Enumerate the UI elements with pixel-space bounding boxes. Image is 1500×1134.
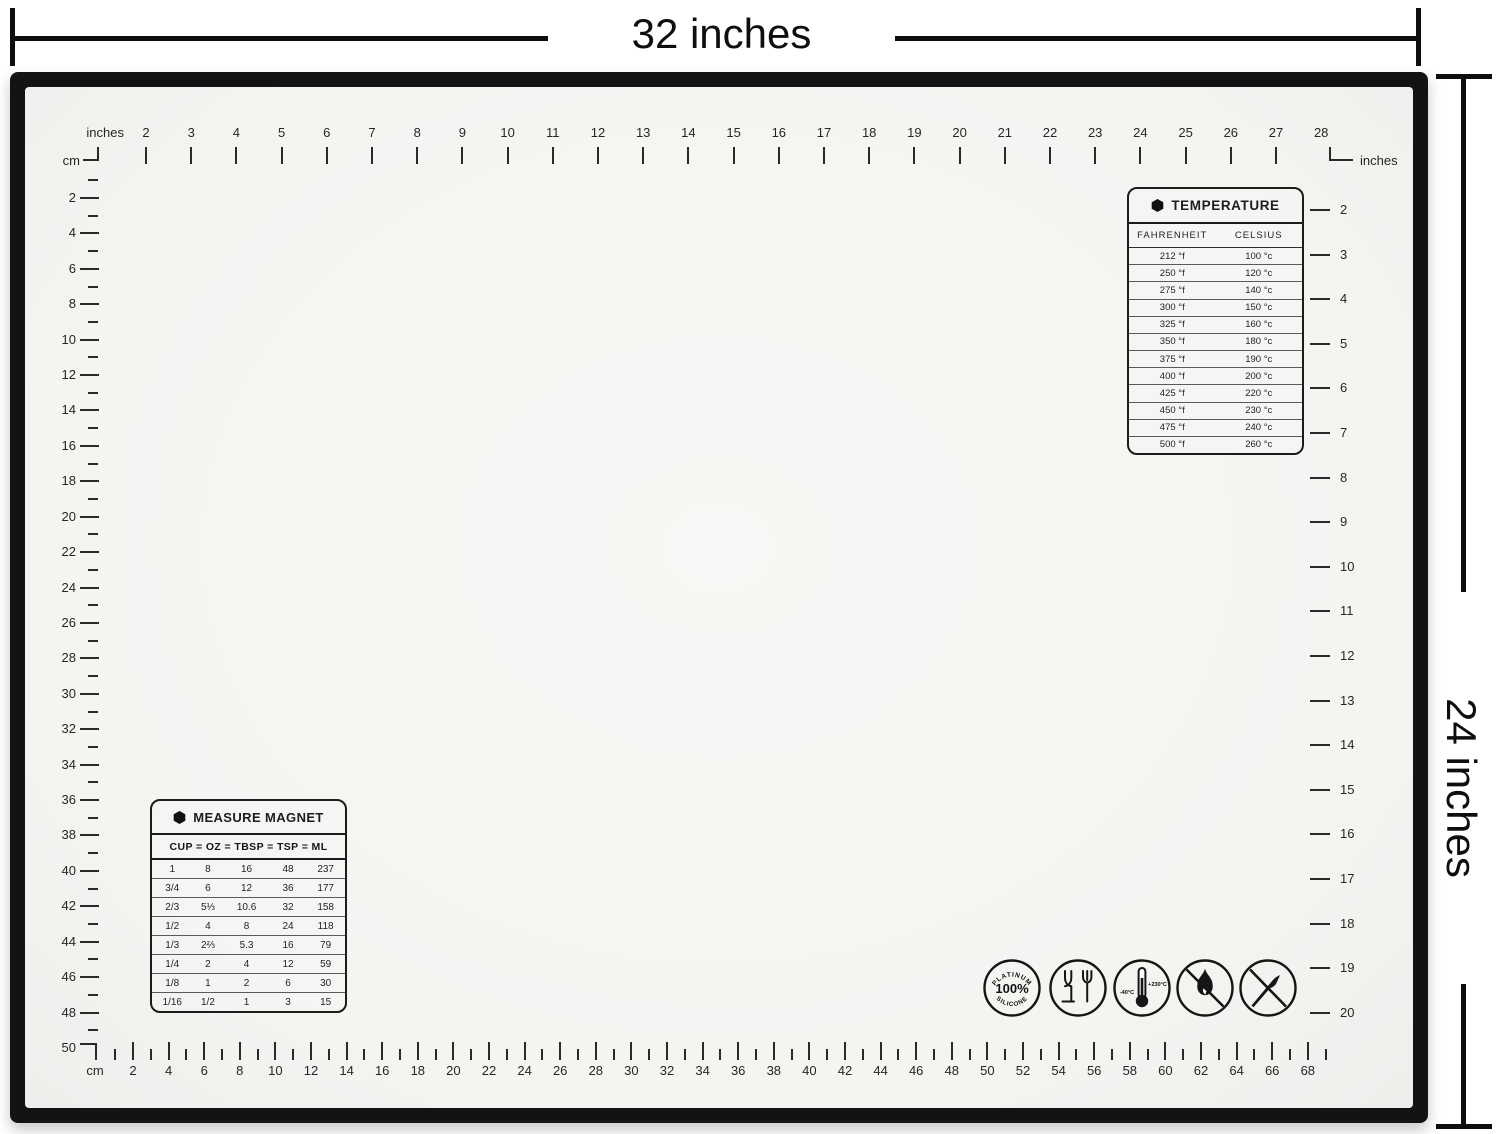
left-ruler-tick: [80, 409, 99, 411]
temperature-row: 450 °f230 °c: [1129, 403, 1302, 420]
measure-cell: 6: [270, 978, 307, 989]
top-ruler-tick: [1230, 147, 1232, 164]
top-ruler-number: 23: [1080, 126, 1110, 140]
bottom-ruler-number: 50: [969, 1064, 1005, 1078]
right-ruler-number: 18: [1340, 917, 1370, 931]
measure-cell: 1/2: [193, 997, 224, 1008]
bottom-ruler-number: 34: [685, 1064, 721, 1078]
bottom-ruler-tick: [274, 1042, 276, 1060]
right-ruler-unit: inches: [1360, 154, 1420, 168]
left-ruler-tick: [88, 958, 98, 960]
bottom-ruler-tick: [1093, 1042, 1095, 1060]
bottom-left-corner-mark: [95, 1043, 97, 1060]
left-ruler-number: 42: [40, 899, 76, 913]
temperature-cell: 100 °c: [1216, 251, 1303, 262]
bottom-ruler-tick: [808, 1042, 810, 1060]
bottom-ruler-number: 36: [720, 1064, 756, 1078]
bottom-ruler-tick: [862, 1049, 864, 1060]
temperature-row: 400 °f200 °c: [1129, 368, 1302, 385]
top-ruler-number: 17: [809, 126, 839, 140]
height-dim-line-top: [1461, 78, 1466, 592]
measure-cell: 118: [306, 921, 345, 932]
top-ruler-number: 21: [990, 126, 1020, 140]
bottom-ruler-number: 2: [115, 1064, 151, 1078]
top-ruler-tick: [552, 147, 554, 164]
left-ruler-number: 8: [40, 297, 76, 311]
right-ruler-tick: [1310, 432, 1330, 434]
measure-table-header: MEASURE MAGNET: [152, 801, 345, 835]
bottom-ruler-tick: [630, 1042, 632, 1060]
top-ruler-number: 14: [673, 126, 703, 140]
measure-cell: 1/3: [152, 940, 193, 951]
temperature-row: 350 °f180 °c: [1129, 334, 1302, 351]
temperature-cell: 450 °f: [1129, 405, 1216, 416]
measure-cell: 36: [270, 883, 307, 894]
right-ruler-tick: [1310, 744, 1330, 746]
right-ruler-number: 19: [1340, 961, 1370, 975]
temperature-cell: 120 °c: [1216, 268, 1303, 279]
left-ruler-tick: [88, 179, 98, 181]
measure-cell: 3/4: [152, 883, 193, 894]
bottom-ruler-tick: [506, 1049, 508, 1060]
left-ruler-tick: [80, 480, 99, 482]
measure-cell: 2: [223, 978, 269, 989]
temperature-cell: 325 °f: [1129, 319, 1216, 330]
left-ruler-tick: [88, 533, 98, 535]
left-ruler-number: 20: [40, 510, 76, 524]
temperature-cell: 250 °f: [1129, 268, 1216, 279]
measure-cell: 1: [223, 997, 269, 1008]
left-ruler-tick: [80, 303, 99, 305]
left-ruler-tick: [88, 640, 98, 642]
left-ruler-tick: [88, 604, 98, 606]
bottom-ruler-tick: [684, 1049, 686, 1060]
right-ruler-number: 6: [1340, 381, 1370, 395]
left-ruler-number: 14: [40, 403, 76, 417]
measure-table-rows: 1816482373/4612361772/35⅓10.6321581/2482…: [152, 860, 345, 1011]
bottom-ruler-number: 68: [1290, 1064, 1326, 1078]
left-ruler-tick: [88, 569, 98, 571]
top-ruler-tick: [778, 147, 780, 164]
left-ruler-number: 2: [40, 191, 76, 205]
measure-cell: 15: [306, 997, 345, 1008]
bottom-ruler-tick: [488, 1042, 490, 1060]
bottom-ruler-number: 30: [613, 1064, 649, 1078]
bottom-ruler-number: 4: [151, 1064, 187, 1078]
measure-cell: 32: [270, 902, 307, 913]
right-ruler-tick: [1310, 298, 1330, 300]
bottom-ruler-number: 54: [1041, 1064, 1077, 1078]
left-ruler-number: 22: [40, 545, 76, 559]
left-ruler-number: 6: [40, 262, 76, 276]
bottom-ruler-tick: [168, 1042, 170, 1060]
right-ruler-tick: [1310, 655, 1330, 657]
measure-cell: 5⅓: [193, 902, 224, 913]
bottom-ruler-number: 58: [1112, 1064, 1148, 1078]
right-ruler-tick: [1310, 387, 1330, 389]
left-ruler-tick: [88, 675, 98, 677]
temperature-cell: 160 °c: [1216, 319, 1303, 330]
bottom-ruler-number: 62: [1183, 1064, 1219, 1078]
top-ruler-tick: [190, 147, 192, 164]
left-ruler-tick: [88, 817, 98, 819]
left-ruler-tick: [80, 657, 99, 659]
bottom-ruler-tick: [737, 1042, 739, 1060]
left-ruler-number: 30: [40, 687, 76, 701]
bottom-ruler-tick: [1075, 1049, 1077, 1060]
bottom-ruler-tick: [1022, 1042, 1024, 1060]
top-ruler-unit: inches: [60, 126, 124, 140]
left-ruler-tick: [80, 870, 99, 872]
left-ruler-tick: [80, 197, 99, 199]
bottom-ruler-number: 10: [257, 1064, 293, 1078]
measure-cell: 1/8: [152, 978, 193, 989]
measure-cell: 2⅔: [193, 940, 224, 951]
left-ruler-number: 32: [40, 722, 76, 736]
temperature-cell: 375 °f: [1129, 354, 1216, 365]
temperature-cell: 230 °c: [1216, 405, 1303, 416]
bottom-ruler-tick: [613, 1049, 615, 1060]
bottom-ruler-tick: [185, 1049, 187, 1060]
measure-table-column-header: CUP = OZ = TBSP = TSP = ML: [152, 835, 345, 860]
top-ruler-number: 7: [357, 126, 387, 140]
temperature-cell: 350 °f: [1129, 336, 1216, 347]
top-ruler-tick: [507, 147, 509, 164]
top-ruler-tick: [823, 147, 825, 164]
measure-magnet-table: MEASURE MAGNET CUP = OZ = TBSP = TSP = M…: [150, 799, 347, 1013]
bottom-ruler-number: 66: [1254, 1064, 1290, 1078]
food-safe-icon: [1051, 961, 1106, 1016]
temperature-cell: 180 °c: [1216, 336, 1303, 347]
measure-cell: 8: [193, 864, 224, 875]
top-right-corner-mark: [1329, 159, 1353, 161]
right-ruler-number: 14: [1340, 738, 1370, 752]
right-ruler-number: 8: [1340, 471, 1370, 485]
temperature-cell: 275 °f: [1129, 285, 1216, 296]
bottom-ruler-tick: [791, 1049, 793, 1060]
bottom-ruler-tick: [114, 1049, 116, 1060]
silicone-label: SILICONE: [995, 995, 1030, 1008]
temperature-cell: 240 °c: [1216, 422, 1303, 433]
top-ruler-tick: [913, 147, 915, 164]
no-knife-icon: [1241, 961, 1296, 1016]
bottom-ruler-tick: [915, 1042, 917, 1060]
right-ruler-tick: [1310, 209, 1330, 211]
right-ruler-tick: [1310, 789, 1330, 791]
top-ruler-number: 12: [583, 126, 613, 140]
top-ruler-tick: [868, 147, 870, 164]
bottom-ruler-tick: [1040, 1049, 1042, 1060]
bottom-ruler-tick: [417, 1042, 419, 1060]
left-ruler-tick: [88, 250, 98, 252]
measure-cell: 48: [270, 864, 307, 875]
left-ruler-tick: [88, 286, 98, 288]
left-ruler-number: 4: [40, 226, 76, 240]
right-ruler-number: 15: [1340, 783, 1370, 797]
bottom-ruler-tick: [1236, 1042, 1238, 1060]
bottom-ruler-number: 28: [578, 1064, 614, 1078]
left-ruler-number: 16: [40, 439, 76, 453]
bottom-ruler-tick: [969, 1049, 971, 1060]
measure-cell: 30: [306, 978, 345, 989]
bottom-ruler-tick: [292, 1049, 294, 1060]
measure-cell: 79: [306, 940, 345, 951]
bottom-ruler-tick: [363, 1049, 365, 1060]
bottom-ruler-tick: [559, 1042, 561, 1060]
bottom-ruler-tick: [257, 1049, 259, 1060]
left-ruler-tick: [80, 587, 99, 589]
max-temp-label: +230°C: [1148, 982, 1167, 988]
top-ruler-number: 27: [1261, 126, 1291, 140]
top-ruler-tick: [1049, 147, 1051, 164]
left-ruler-tick: [80, 516, 99, 518]
hexagon-icon: [1151, 199, 1164, 212]
left-ruler-tick: [88, 321, 98, 323]
temperature-cell: 212 °f: [1129, 251, 1216, 262]
measure-cell: 177: [306, 883, 345, 894]
top-ruler-number: 15: [719, 126, 749, 140]
right-ruler-number: 16: [1340, 827, 1370, 841]
bottom-ruler-tick: [826, 1049, 828, 1060]
width-dim-line-left: [10, 36, 548, 41]
bottom-ruler-tick: [648, 1049, 650, 1060]
bottom-ruler-tick: [435, 1049, 437, 1060]
left-ruler-unit: cm: [46, 154, 80, 168]
temperature-cell: 220 °c: [1216, 388, 1303, 399]
bottom-ruler-tick: [399, 1049, 401, 1060]
bottom-ruler-tick: [1271, 1042, 1273, 1060]
bottom-ruler-tick: [1164, 1042, 1166, 1060]
bottom-ruler-number: 22: [471, 1064, 507, 1078]
temperature-table-header: TEMPERATURE: [1129, 189, 1302, 224]
right-ruler-number: 20: [1340, 1006, 1370, 1020]
right-ruler-tick: [1310, 967, 1330, 969]
bottom-ruler-tick: [150, 1049, 152, 1060]
right-ruler-tick: [1310, 521, 1330, 523]
bottom-ruler-tick: [1058, 1042, 1060, 1060]
width-dimension-label: 32 inches: [548, 10, 895, 58]
bottom-ruler-tick: [773, 1042, 775, 1060]
measure-cell: 4: [193, 921, 224, 932]
right-ruler-number: 3: [1340, 248, 1370, 262]
bottom-ruler-tick: [986, 1042, 988, 1060]
bottom-ruler-tick: [1253, 1049, 1255, 1060]
right-ruler-tick: [1310, 700, 1330, 702]
right-ruler-number: 9: [1340, 515, 1370, 529]
bottom-ruler-tick: [755, 1049, 757, 1060]
right-ruler-tick: [1310, 878, 1330, 880]
right-ruler-tick: [1310, 610, 1330, 612]
temperature-cell: 190 °c: [1216, 354, 1303, 365]
left-ruler-tick: [88, 746, 98, 748]
bottom-ruler-tick: [1218, 1049, 1220, 1060]
left-ruler-tick: [88, 781, 98, 783]
bottom-ruler-tick: [1325, 1049, 1327, 1060]
svg-text:SILICONE: SILICONE: [995, 995, 1030, 1008]
left-ruler-tick: [88, 215, 98, 217]
fahrenheit-column-header: FAHRENHEIT: [1129, 230, 1216, 241]
top-ruler-tick: [461, 147, 463, 164]
temperature-cell: 475 °f: [1129, 422, 1216, 433]
bottom-ruler-number: 38: [756, 1064, 792, 1078]
left-ruler-tick: [80, 1012, 99, 1014]
left-ruler-tick: [88, 888, 98, 890]
top-ruler-tick: [687, 147, 689, 164]
left-ruler-tick: [88, 923, 98, 925]
measure-cell: 2/3: [152, 902, 193, 913]
measure-cell: 3: [270, 997, 307, 1008]
bottom-ruler-tick: [470, 1049, 472, 1060]
top-ruler-number: 5: [267, 126, 297, 140]
temperature-table-rows: 212 °f100 °c250 °f120 °c275 °f140 °c300 …: [1129, 248, 1302, 453]
left-ruler-tick: [80, 976, 99, 978]
top-ruler-number: 18: [854, 126, 884, 140]
left-ruler-number: 26: [40, 616, 76, 630]
temperature-cell: 140 °c: [1216, 285, 1303, 296]
bottom-ruler-tick: [1289, 1049, 1291, 1060]
top-ruler-number: 9: [447, 126, 477, 140]
right-ruler-tick: [1310, 833, 1330, 835]
bottom-ruler-tick: [381, 1042, 383, 1060]
top-ruler-number: 24: [1125, 126, 1155, 140]
top-ruler-number: 10: [493, 126, 523, 140]
measure-cell: 59: [306, 959, 345, 970]
bottom-ruler-tick: [239, 1042, 241, 1060]
top-ruler-tick: [642, 147, 644, 164]
bottom-ruler-tick: [933, 1049, 935, 1060]
no-open-flame-icon: [1178, 961, 1233, 1016]
temperature-cell: 500 °f: [1129, 439, 1216, 450]
top-ruler-tick: [597, 147, 599, 164]
left-ruler-tick: [88, 392, 98, 394]
left-ruler-tick: [80, 445, 99, 447]
measure-cell: 4: [223, 959, 269, 970]
bottom-ruler-number: 48: [934, 1064, 970, 1078]
temperature-row: 375 °f190 °c: [1129, 351, 1302, 368]
temperature-row: 212 °f100 °c: [1129, 248, 1302, 265]
right-ruler-tick: [1310, 477, 1330, 479]
top-ruler-tick: [1004, 147, 1006, 164]
left-ruler-tick: [80, 374, 99, 376]
left-ruler-tick: [80, 693, 99, 695]
right-ruler-number: 13: [1340, 694, 1370, 708]
left-ruler-tick: [88, 427, 98, 429]
top-ruler-number: 22: [1035, 126, 1065, 140]
left-ruler-tick: [80, 622, 99, 624]
left-ruler-number: 46: [40, 970, 76, 984]
left-ruler-number: 18: [40, 474, 76, 488]
temperature-cell: 300 °f: [1129, 302, 1216, 313]
measure-cell: 12: [223, 883, 269, 894]
top-ruler-tick: [1185, 147, 1187, 164]
top-ruler-number: 11: [538, 126, 568, 140]
bottom-ruler-tick: [1182, 1049, 1184, 1060]
bottom-ruler-tick: [880, 1042, 882, 1060]
right-ruler-tick: [1310, 1012, 1330, 1014]
bottom-ruler-number: 8: [222, 1064, 258, 1078]
top-ruler-number: 2: [131, 126, 161, 140]
left-ruler-number: 28: [40, 651, 76, 665]
bottom-ruler-tick: [524, 1042, 526, 1060]
measure-table-title: MEASURE MAGNET: [193, 810, 324, 825]
bottom-ruler-number: 14: [329, 1064, 365, 1078]
top-ruler-tick: [959, 147, 961, 164]
left-ruler-number: 50: [40, 1041, 76, 1055]
bottom-ruler-number: 40: [791, 1064, 827, 1078]
left-ruler-number: 40: [40, 864, 76, 878]
left-ruler-number: 24: [40, 581, 76, 595]
top-ruler-tick: [733, 147, 735, 164]
measure-row: 1/161/21315: [152, 993, 345, 1011]
left-ruler-tick: [80, 232, 99, 234]
bottom-ruler-tick: [719, 1049, 721, 1060]
left-ruler-tick: [80, 268, 99, 270]
temperature-row: 475 °f240 °c: [1129, 420, 1302, 437]
left-ruler-tick: [80, 905, 99, 907]
left-ruler-tick: [88, 356, 98, 358]
bottom-ruler-number: 44: [863, 1064, 899, 1078]
height-dim-line-bottom: [1461, 984, 1466, 1126]
bottom-ruler-tick: [132, 1042, 134, 1060]
left-ruler-tick: [80, 551, 99, 553]
bottom-ruler-tick: [1129, 1042, 1131, 1060]
bottom-ruler-number: 64: [1219, 1064, 1255, 1078]
left-ruler-number: 12: [40, 368, 76, 382]
left-ruler-tick: [80, 764, 99, 766]
top-ruler-tick: [145, 147, 147, 164]
top-ruler-number: 26: [1216, 126, 1246, 140]
right-ruler-tick: [1310, 343, 1330, 345]
temperature-cell: 260 °c: [1216, 439, 1303, 450]
right-ruler-number: 11: [1340, 604, 1370, 618]
measure-cell: 1/4: [152, 959, 193, 970]
right-ruler-number: 12: [1340, 649, 1370, 663]
measure-row: 2/35⅓10.632158: [152, 898, 345, 917]
left-ruler-tick: [80, 728, 99, 730]
measure-cell: 1/16: [152, 997, 193, 1008]
temperature-table: TEMPERATURE FAHRENHEIT CELSIUS 212 °f100…: [1127, 187, 1304, 455]
bottom-ruler-number: 16: [364, 1064, 400, 1078]
measure-row: 1/24824118: [152, 917, 345, 936]
bottom-ruler-tick: [1200, 1042, 1202, 1060]
height-dimension-label: 24 inches: [1441, 618, 1485, 958]
bottom-ruler-tick: [577, 1049, 579, 1060]
temperature-row: 500 °f260 °c: [1129, 437, 1302, 453]
top-ruler-tick: [326, 147, 328, 164]
temperature-row: 275 °f140 °c: [1129, 282, 1302, 299]
top-ruler-number: 3: [176, 126, 206, 140]
top-ruler-number: 16: [764, 126, 794, 140]
right-ruler-number: 17: [1340, 872, 1370, 886]
bottom-ruler-number: 26: [542, 1064, 578, 1078]
platinum-silicone-icon: PLATINUM 100% SILICONE: [985, 961, 1040, 1016]
measure-row: 1/32⅔5.31679: [152, 936, 345, 955]
bottom-ruler-tick: [328, 1049, 330, 1060]
measure-cell: 2: [193, 959, 224, 970]
left-ruler-number: 44: [40, 935, 76, 949]
right-ruler-tick: [1310, 566, 1330, 568]
bottom-ruler-number: 6: [186, 1064, 222, 1078]
right-ruler-number: 7: [1340, 426, 1370, 440]
bottom-ruler-tick: [1307, 1042, 1309, 1060]
measure-cell: 16: [223, 864, 269, 875]
temperature-cell: 400 °f: [1129, 371, 1216, 382]
bottom-ruler-number: 42: [827, 1064, 863, 1078]
bottom-ruler-number: 52: [1005, 1064, 1041, 1078]
bottom-ruler-tick: [951, 1042, 953, 1060]
left-ruler-number: 48: [40, 1006, 76, 1020]
left-ruler-number: 38: [40, 828, 76, 842]
